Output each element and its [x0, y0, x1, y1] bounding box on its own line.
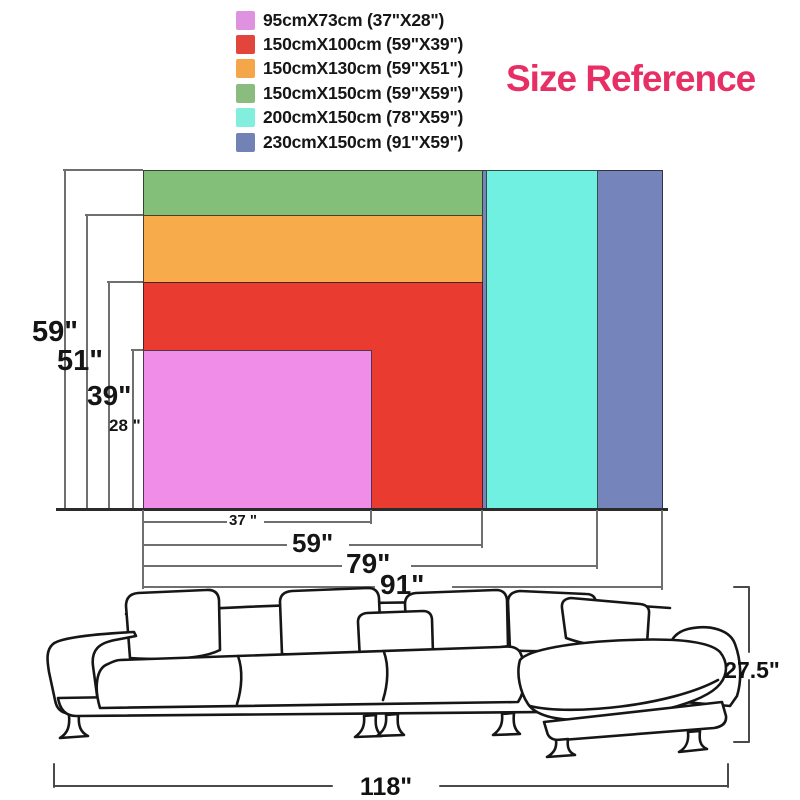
height-label-39: 39"	[87, 382, 131, 410]
swatch-200x150	[236, 108, 255, 127]
legend-item: 150cmX150cm (59"X59")	[236, 81, 463, 105]
swatch-95x73	[236, 11, 255, 30]
legend-label: 95cmX73cm (37"X28")	[263, 10, 444, 31]
height-label-28: 28 "	[109, 417, 141, 434]
chaise-leg-2	[679, 731, 707, 752]
legend-label: 150cmX130cm (59"X51")	[263, 58, 463, 79]
legend-item: 150cmX130cm (59"X51")	[236, 57, 463, 81]
back-pillow-1	[126, 590, 220, 659]
sofa-leg-2	[377, 714, 404, 736]
page-title: Size Reference	[506, 58, 755, 100]
legend-label: 230cmX150cm (91"X59")	[263, 132, 463, 153]
legend-item: 150cmX100cm (59"X39")	[236, 32, 463, 56]
swatch-150x130	[236, 59, 255, 78]
sofa-illustration: 27.5" 118"	[30, 580, 800, 800]
dim-line-79w	[411, 565, 597, 567]
sofa-leg-3	[493, 713, 520, 735]
swatch-230x150	[236, 133, 255, 152]
dim-line-59w	[349, 544, 482, 546]
rect-200x150	[486, 170, 598, 510]
sofa-height-label: 27.5"	[724, 657, 780, 683]
height-label-59: 59"	[32, 318, 78, 347]
legend-item: 200cmX150cm (78"X59")	[236, 106, 463, 130]
chaise-leg-1	[547, 739, 575, 757]
dim-tick-51	[85, 214, 143, 216]
left-arm-leg	[60, 714, 88, 738]
height-label-51: 51"	[57, 347, 103, 376]
dim-line-37w	[264, 521, 371, 523]
width-label-37: 37 "	[229, 513, 257, 528]
dim-tick-39	[107, 281, 143, 283]
dim-line-79w	[143, 565, 342, 567]
ext-line-79	[596, 510, 598, 569]
legend-label: 150cmX150cm (59"X59")	[263, 83, 463, 104]
size-legend: 95cmX73cm (37"X28") 150cmX100cm (59"X39"…	[236, 8, 463, 154]
dim-tick-59	[63, 169, 143, 171]
dim-line-59w	[143, 544, 287, 546]
rect-95x73	[143, 350, 372, 510]
dim-line-37w	[143, 521, 227, 523]
sofa-width-label: 118"	[360, 773, 412, 800]
legend-label: 150cmX100cm (59"X39")	[263, 34, 463, 55]
legend-item: 230cmX150cm (91"X59")	[236, 130, 463, 154]
legend-item: 95cmX73cm (37"X28")	[236, 8, 463, 32]
width-label-59: 59"	[292, 530, 333, 556]
swatch-150x150	[236, 84, 255, 103]
diagram-baseline	[56, 508, 668, 511]
ext-line-91	[661, 510, 663, 590]
swatch-150x100	[236, 35, 255, 54]
legend-label: 200cmX150cm (78"X59")	[263, 107, 463, 128]
ext-line-59	[481, 510, 483, 548]
